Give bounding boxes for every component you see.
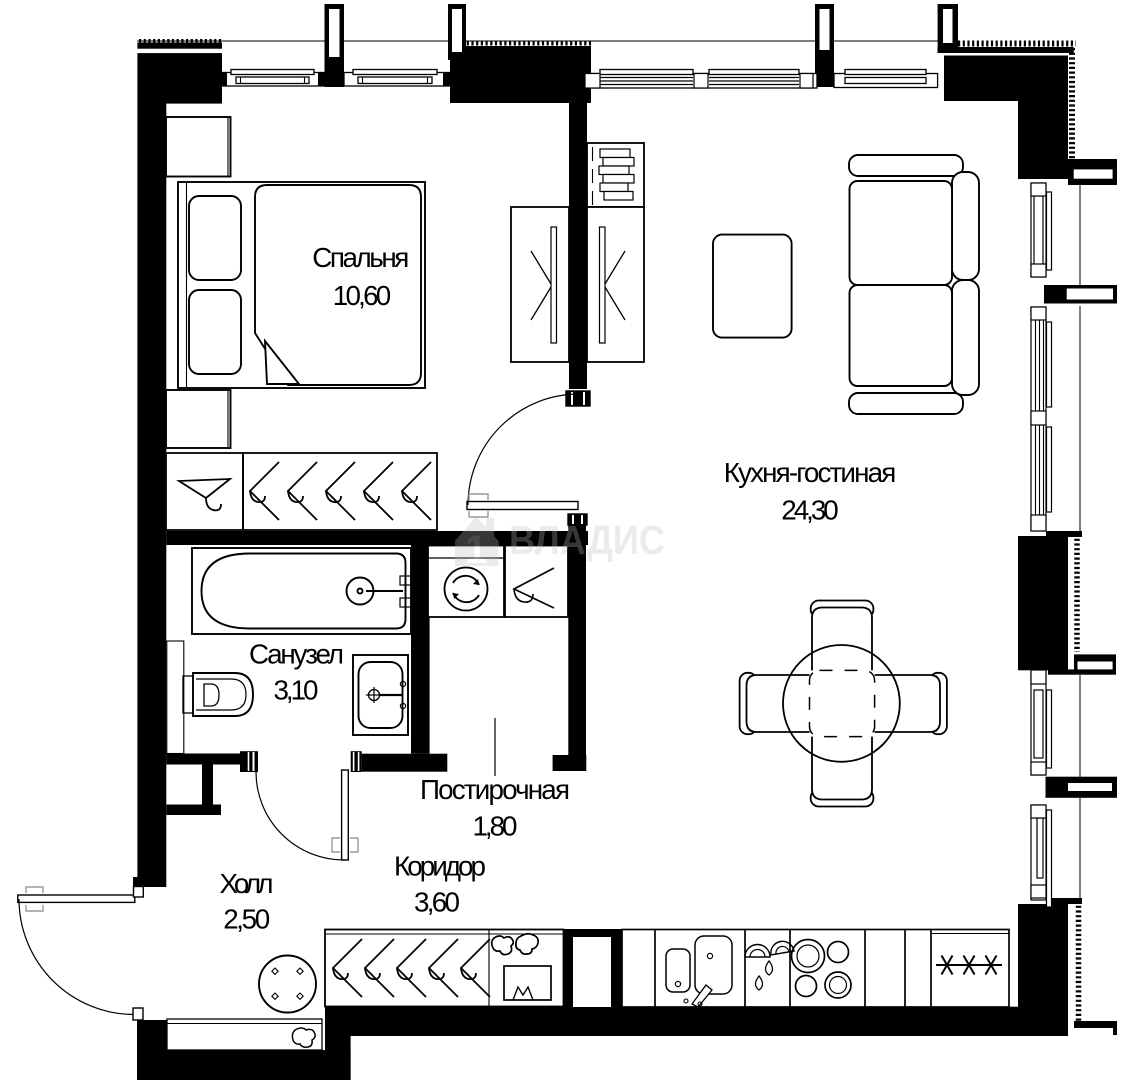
svg-text:3,10: 3,10 xyxy=(274,675,319,706)
svg-text:Холл: Холл xyxy=(220,868,274,899)
svg-text:10,60: 10,60 xyxy=(333,280,392,311)
svg-text:1,80: 1,80 xyxy=(473,811,518,842)
svg-text:Санузел: Санузел xyxy=(249,639,344,670)
svg-text:3,60: 3,60 xyxy=(414,887,460,918)
svg-text:24,30: 24,30 xyxy=(781,495,839,526)
svg-text:ВЛАДИС: ВЛАДИС xyxy=(509,517,665,563)
svg-text:Спальня: Спальня xyxy=(312,242,409,273)
svg-text:Кухня-гостиная: Кухня-гостиная xyxy=(724,457,897,488)
svg-text:Коридор: Коридор xyxy=(394,851,486,882)
svg-text:2,50: 2,50 xyxy=(223,904,270,935)
svg-text:Постирочная: Постирочная xyxy=(420,774,570,805)
svg-text:1: 1 xyxy=(465,528,487,572)
